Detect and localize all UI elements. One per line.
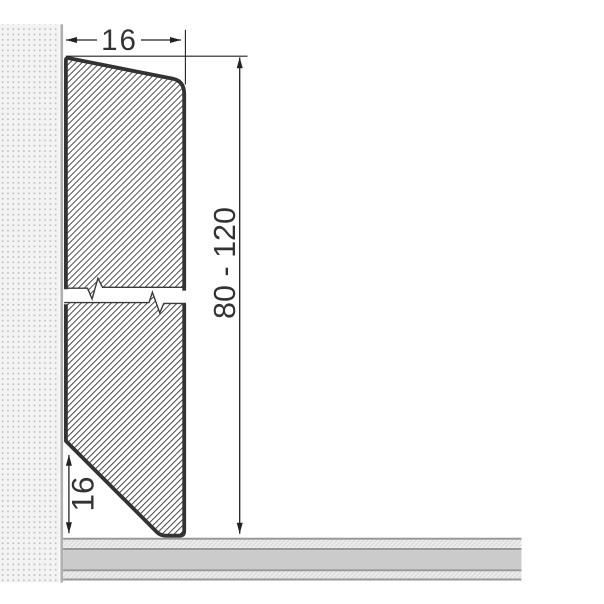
svg-text:16: 16 [65,476,101,511]
svg-text:16: 16 [101,24,138,57]
svg-text:80 - 120: 80 - 120 [208,207,242,319]
